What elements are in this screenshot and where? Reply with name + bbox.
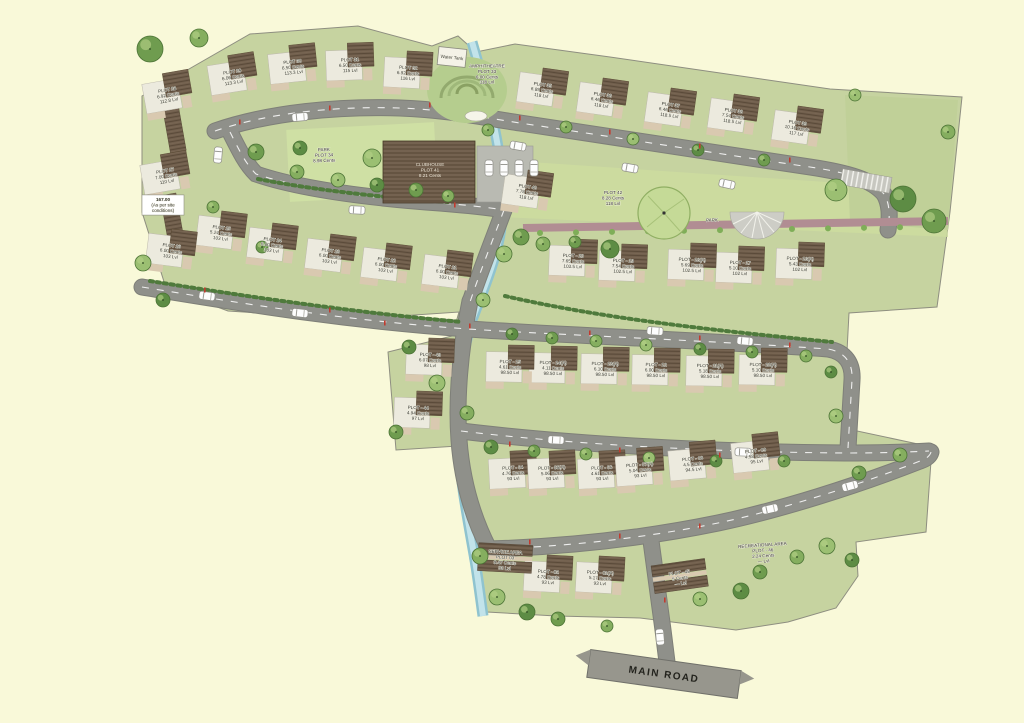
road-marker xyxy=(384,321,386,326)
tree-icon xyxy=(922,209,946,233)
site-plan-canvas: Water Tank PLOT - 01(A)5.17 Cents93 LvlP… xyxy=(0,0,1024,723)
tree-icon xyxy=(601,620,613,632)
tree-icon xyxy=(852,466,866,480)
tree-icon xyxy=(546,332,558,344)
road-marker xyxy=(454,203,456,208)
tree-icon xyxy=(693,592,707,606)
plot-label: 167.00(As per siteconditions) xyxy=(142,195,184,215)
tree-icon xyxy=(484,440,498,454)
hedge-tree-icon xyxy=(897,224,903,230)
tree-icon xyxy=(845,553,859,567)
hedge-tree-icon xyxy=(789,226,795,232)
car-icon xyxy=(292,112,309,121)
road-marker xyxy=(329,308,331,313)
road-marker xyxy=(529,540,531,545)
plot-label-line: — Lvl xyxy=(758,558,770,564)
road-marker xyxy=(429,103,431,108)
tree-icon xyxy=(758,154,770,166)
tree-icon xyxy=(746,346,758,358)
tree-icon xyxy=(849,89,861,101)
plot-label-line: 93 Lvl xyxy=(507,476,520,482)
plot-label-line: PLOT 33 xyxy=(478,69,497,74)
plot-label-line: 6.00 Cents xyxy=(476,74,499,79)
plot-label-line: 116 Lvl xyxy=(400,76,415,82)
plot-label-line: 8.98 Cents xyxy=(313,158,336,164)
plot-label-line: 103.5 Lvl xyxy=(563,264,582,270)
plot-label-line: 98.50 Lvl xyxy=(754,373,773,378)
large-tree-icon xyxy=(638,187,690,239)
plot-label-line: PLOT 41 xyxy=(421,168,440,173)
tree-icon xyxy=(580,448,592,460)
tree-icon xyxy=(442,190,454,202)
tree-icon xyxy=(293,141,307,155)
hedge-tree-icon xyxy=(609,229,615,235)
plot-label-line: 102 Lvl xyxy=(732,271,747,277)
road-marker xyxy=(204,288,206,293)
car-icon xyxy=(647,326,664,335)
plot-label-line: 8.28 Cents xyxy=(602,196,625,201)
tree-icon xyxy=(248,144,264,160)
car-icon xyxy=(485,160,493,176)
plot-label-line: 98.50 Lvl xyxy=(701,374,720,379)
tree-icon xyxy=(551,612,565,626)
plot-label-line: CLUBHOUSE xyxy=(416,162,445,167)
tree-icon xyxy=(482,124,494,136)
plot-label-line: 102.5 Lvl xyxy=(682,268,701,274)
plot-label-line: 93 Lvl xyxy=(593,581,606,587)
car-icon xyxy=(530,160,538,176)
tree-icon xyxy=(331,173,345,187)
plot-label-line: 93 Lvl xyxy=(634,473,647,479)
road-marker xyxy=(664,598,666,603)
car-icon xyxy=(500,160,508,176)
plot-label: PLOT - 154.61 Cents98.50 Lvl xyxy=(499,359,522,375)
tree-icon xyxy=(207,201,219,213)
tree-icon xyxy=(790,550,804,564)
road-marker xyxy=(329,106,331,111)
road-marker xyxy=(699,524,701,529)
car-icon xyxy=(213,147,222,164)
tree-icon xyxy=(496,246,512,262)
road-marker xyxy=(509,442,511,447)
plot-label-line: 115 Lvl xyxy=(343,68,358,74)
plot-label-line: 118 Lvl xyxy=(606,201,620,206)
tree-icon xyxy=(290,165,304,179)
plot-label-line: (As per site xyxy=(151,203,175,208)
tree-icon xyxy=(800,350,812,362)
tree-icon xyxy=(893,448,907,462)
car-icon xyxy=(737,336,754,345)
plot-label-line: PLOT 42 xyxy=(604,190,623,195)
tree-icon xyxy=(409,183,423,197)
tree-icon xyxy=(640,339,652,351)
tree-icon xyxy=(536,237,550,251)
plot-label-line: 98.50 Lvl xyxy=(544,371,563,376)
tree-icon xyxy=(156,293,170,307)
tree-icon xyxy=(389,425,403,439)
road-marker xyxy=(789,343,791,348)
tree-icon xyxy=(590,335,602,347)
tree-icon xyxy=(560,121,572,133)
car-icon xyxy=(548,436,564,445)
tree-icon xyxy=(601,240,619,258)
plot-label-line: 98.50 Lvl xyxy=(647,373,666,378)
tree-icon xyxy=(694,343,706,355)
tree-icon xyxy=(460,406,474,420)
car-icon xyxy=(199,291,216,301)
tree-icon xyxy=(627,133,639,145)
plot-label-line: 118 Lvl xyxy=(480,80,494,85)
road-marker xyxy=(519,116,521,121)
plot-label-line: 97 Lvl xyxy=(412,416,424,421)
road-marker xyxy=(609,130,611,135)
tree-icon xyxy=(363,149,381,167)
plot-label-line: 93 Lvl xyxy=(546,476,559,482)
tree-icon xyxy=(476,293,490,307)
tree-icon xyxy=(137,36,163,62)
tree-icon xyxy=(190,29,208,47)
plot-label: PLOT - 207.65 Cents103.5 Lvl xyxy=(562,253,585,270)
plot-label-line: 98.50 Lvl xyxy=(501,370,520,375)
tree-icon xyxy=(825,179,847,201)
tree-icon xyxy=(829,409,843,423)
plot-label-line: 93 Lvl xyxy=(596,476,609,482)
tree-icon xyxy=(890,186,916,212)
tree-icon xyxy=(941,125,955,139)
tree-icon xyxy=(733,583,749,599)
car-icon xyxy=(349,206,365,215)
road-marker xyxy=(589,331,591,336)
road-marker xyxy=(699,144,701,149)
tree-icon xyxy=(472,548,488,564)
tree-icon xyxy=(402,340,416,354)
plot-label-line: 98.50 Lvl xyxy=(596,372,615,377)
tree-icon xyxy=(569,236,581,248)
tree-icon xyxy=(825,366,837,378)
plot-label-line: 98 Lvl xyxy=(424,363,436,368)
plot-label: PARK xyxy=(706,217,719,222)
road-marker xyxy=(469,324,471,329)
car-icon xyxy=(292,308,309,318)
water-tank: Water Tank xyxy=(437,47,467,68)
tree-icon xyxy=(429,375,445,391)
tree-icon xyxy=(753,565,767,579)
plot-label: PLOT - 084.5 Cents94.5 Lvl xyxy=(682,455,705,473)
plot-label-line: PARK xyxy=(706,217,719,222)
plot-label-line: 102.5 Lvl xyxy=(613,269,632,275)
plot-label: PLOT - 126.00 Cents98.50 Lvl xyxy=(645,362,668,378)
road-marker xyxy=(619,448,621,453)
tree-icon xyxy=(513,229,529,245)
car-icon xyxy=(655,629,664,646)
plot-label-line: AMPHITHEATRE xyxy=(469,64,505,69)
plot-label-line: 93 Lvl xyxy=(541,580,554,586)
plot-label-line: 93 Lvl xyxy=(498,565,511,571)
tree-icon xyxy=(819,538,835,554)
tree-icon xyxy=(519,604,535,620)
plot-label: PLOT - 197.54 Cents102.5 Lvl xyxy=(612,258,635,275)
hedge-tree-icon xyxy=(861,225,867,231)
road-marker xyxy=(719,453,721,458)
tree-icon xyxy=(135,255,151,271)
road-marker xyxy=(789,158,791,163)
hedge-tree-icon xyxy=(825,225,831,231)
road-marker xyxy=(619,534,621,539)
tree-icon xyxy=(778,455,790,467)
tree-icon xyxy=(370,178,384,192)
plot-label-line: 8.21 Cents xyxy=(419,173,442,178)
hedge-tree-icon xyxy=(717,227,723,233)
plot-label-line: 102 Lvl xyxy=(792,267,807,273)
tree-icon xyxy=(489,589,505,605)
plot-label-line: conditions) xyxy=(152,208,175,213)
tree-icon xyxy=(692,144,704,156)
site-plan-svg: Water Tank PLOT - 01(A)5.17 Cents93 LvlP… xyxy=(0,0,1024,723)
car-icon xyxy=(515,160,523,176)
hedge-tree-icon xyxy=(573,229,579,235)
tree-icon xyxy=(506,328,518,340)
road-marker xyxy=(239,120,241,125)
road-marker xyxy=(699,336,701,341)
plot-label-line: 167.00 xyxy=(156,197,170,202)
tree-icon xyxy=(528,445,540,457)
hedge-tree-icon xyxy=(537,230,543,236)
